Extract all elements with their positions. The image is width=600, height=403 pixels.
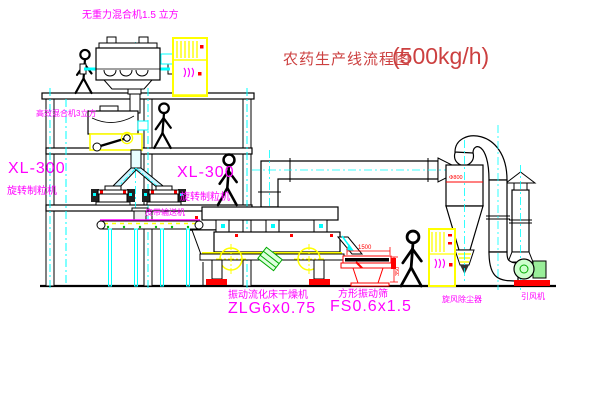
- screen-model-label: FS0.6x1.5: [330, 299, 412, 315]
- control-cabinet-1: [173, 38, 207, 96]
- screen-height-dim: 350: [395, 267, 401, 276]
- high-eff-mixer-label: 高效混合机3立方: [36, 110, 96, 118]
- dryer-model-label: ZLG6x0.75: [228, 301, 316, 317]
- belt-conveyor-label: 皮带输送机: [145, 209, 185, 217]
- screen-length-dim: 1500: [358, 245, 372, 251]
- cyclone-separator: Φ800: [446, 125, 518, 290]
- vibrating-screen: 1500 350: [341, 245, 401, 286]
- worker-figure-4: [401, 231, 421, 286]
- gravity-mixer: [80, 37, 176, 113]
- fluid-bed-dryer: [200, 207, 362, 285]
- fan-label: 引风机: [521, 293, 545, 301]
- cyclone-diameter-dim: Φ800: [449, 175, 463, 181]
- granulator-left-name: 旋转制粒机: [7, 187, 57, 197]
- cyclone-label: 旋风除尘器: [442, 296, 482, 304]
- diagram-capacity: (500kg/h): [392, 45, 489, 68]
- granulator-left: [91, 186, 135, 205]
- flow-diagram: 1500 350 Φ800: [0, 0, 600, 403]
- gravity-mixer-label: 无重力混合机1.5 立方: [82, 11, 179, 21]
- control-cabinet-2: [429, 229, 455, 286]
- induced-draft-fan: [514, 259, 550, 286]
- granulator-right-name: 旋转制粒机: [180, 193, 230, 203]
- exhaust-duct: [252, 150, 470, 215]
- granulator-left-model: XL-300: [8, 161, 66, 177]
- worker-figure-2: [154, 103, 171, 148]
- granulator-right-model: XL-300: [177, 165, 235, 181]
